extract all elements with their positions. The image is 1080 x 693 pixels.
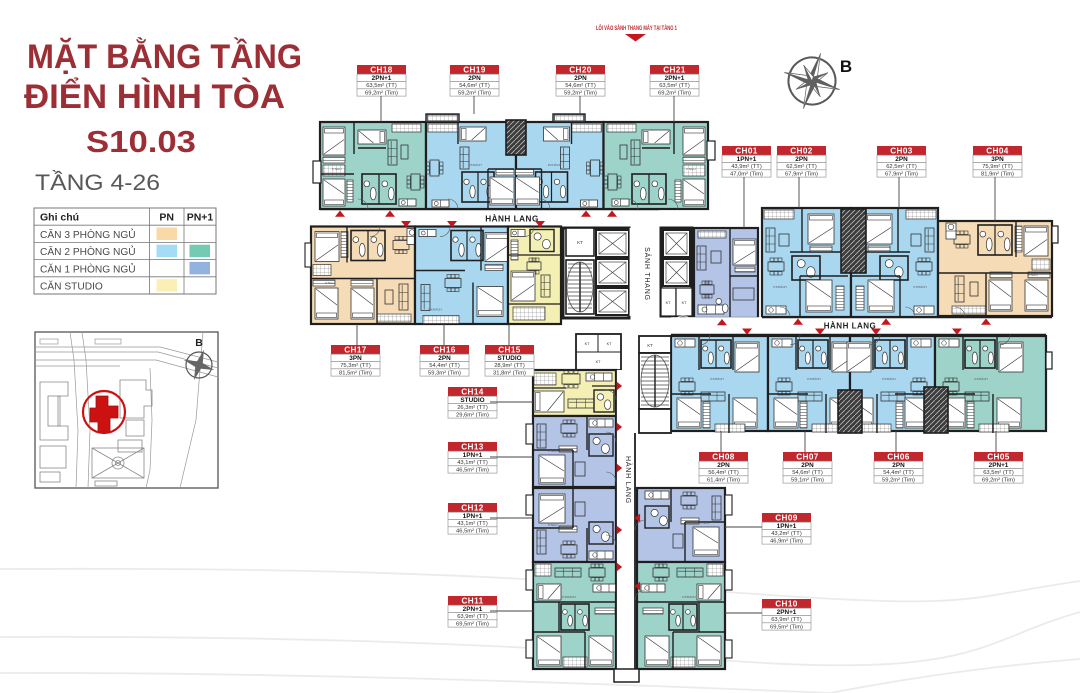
svg-text:54,4m² (TT): 54,4m² (TT) (429, 363, 460, 369)
svg-text:2PN: 2PN (892, 462, 905, 469)
svg-text:2PN+1: 2PN+1 (989, 462, 1009, 469)
svg-text:CĂN 2 PHÒNG NGỦ: CĂN 2 PHÒNG NGỦ (40, 245, 136, 258)
svg-text:PN+1: PN+1 (187, 212, 214, 224)
svg-text:2PN+1: 2PN+1 (777, 609, 797, 616)
svg-text:46,5m² (Tim): 46,5m² (Tim) (456, 467, 489, 473)
svg-text:47,0m² (Tim): 47,0m² (Tim) (730, 171, 763, 177)
svg-text:2PN: 2PN (895, 156, 908, 163)
svg-text:CH15: CH15 (498, 345, 521, 354)
svg-text:26,3m² (TT): 26,3m² (TT) (457, 405, 488, 411)
svg-text:CĂN 3 PHÒNG NGỦ: CĂN 3 PHÒNG NGỦ (40, 228, 136, 241)
svg-text:CH16: CH16 (433, 345, 456, 354)
svg-text:CH09: CH09 (775, 513, 798, 522)
svg-text:KT: KT (682, 301, 688, 305)
svg-text:CH01: CH01 (735, 146, 758, 155)
svg-text:P.KHÁCH: P.KHÁCH (428, 308, 441, 312)
svg-text:SẢNH THANG: SẢNH THANG (643, 247, 652, 301)
svg-text:P.NGỦ: P.NGỦ (548, 448, 557, 453)
svg-text:43,1m² (TT): 43,1m² (TT) (457, 521, 488, 527)
svg-text:69,5m² (Tim): 69,5m² (Tim) (770, 624, 803, 630)
svg-text:62,5m² (TT): 62,5m² (TT) (786, 164, 817, 170)
svg-text:B: B (840, 57, 852, 76)
svg-text:ĐIỂN HÌNH TÒA: ĐIỂN HÌNH TÒA (24, 78, 285, 116)
svg-text:CH08: CH08 (712, 452, 735, 461)
svg-text:63,9m² (TT): 63,9m² (TT) (457, 614, 488, 620)
svg-text:69,2m² (Tim): 69,2m² (Tim) (658, 90, 691, 96)
svg-text:63,5m² (TT): 63,5m² (TT) (366, 83, 397, 89)
svg-text:1PN+1: 1PN+1 (463, 452, 483, 459)
svg-text:P.KHÁCH: P.KHÁCH (974, 377, 987, 381)
svg-text:43,1m² (TT): 43,1m² (TT) (457, 460, 488, 466)
svg-text:HÀNH LANG: HÀNH LANG (824, 322, 877, 331)
svg-text:63,5m² (TT): 63,5m² (TT) (983, 470, 1014, 476)
svg-text:59,2m² (Tim): 59,2m² (Tim) (882, 477, 915, 483)
svg-text:59,1m² (Tim): 59,1m² (Tim) (791, 477, 824, 483)
svg-text:75,3m² (TT): 75,3m² (TT) (340, 363, 371, 369)
svg-text:54,4m² (TT): 54,4m² (TT) (883, 470, 914, 476)
svg-text:CH21: CH21 (663, 65, 686, 74)
svg-text:46,5m² (Tim): 46,5m² (Tim) (456, 528, 489, 534)
svg-text:P.NGỦ: P.NGỦ (332, 166, 341, 171)
svg-text:CH03: CH03 (890, 146, 913, 155)
svg-text:56,4m² (TT): 56,4m² (TT) (708, 470, 739, 476)
svg-text:59,2m² (Tim): 59,2m² (Tim) (458, 90, 491, 96)
svg-text:2PN+1: 2PN+1 (463, 606, 483, 613)
svg-text:CH13: CH13 (461, 442, 484, 451)
svg-text:43,9m² (TT): 43,9m² (TT) (731, 164, 762, 170)
svg-text:KT: KT (607, 342, 613, 346)
svg-text:CĂN STUDIO: CĂN STUDIO (40, 280, 103, 293)
svg-text:2PN: 2PN (801, 462, 814, 469)
svg-text:63,9m² (TT): 63,9m² (TT) (771, 617, 802, 623)
svg-text:1PN+1: 1PN+1 (463, 513, 483, 520)
svg-text:54,6m² (TT): 54,6m² (TT) (565, 83, 596, 89)
svg-text:KT: KT (577, 240, 583, 245)
svg-text:CH05: CH05 (987, 452, 1010, 461)
svg-text:P.NGỦ: P.NGỦ (700, 520, 709, 525)
svg-text:CH11: CH11 (461, 596, 483, 605)
svg-text:P.KHÁCH: P.KHÁCH (882, 377, 895, 381)
svg-text:54,6m² (TT): 54,6m² (TT) (459, 83, 490, 89)
svg-text:KT: KT (585, 342, 591, 346)
svg-text:Ghi chú: Ghi chú (40, 212, 79, 224)
svg-text:P.KHÁCH: P.KHÁCH (913, 285, 926, 289)
svg-text:B: B (195, 337, 203, 349)
svg-text:P.KHÁCH: P.KHÁCH (773, 285, 786, 289)
svg-text:STUDIO: STUDIO (460, 397, 484, 404)
svg-text:2PN+1: 2PN+1 (372, 75, 392, 82)
svg-text:HÀNH LANG: HÀNH LANG (624, 456, 633, 504)
svg-text:29,6m² (Tim): 29,6m² (Tim) (456, 412, 489, 418)
svg-text:31,8m² (Tim): 31,8m² (Tim) (493, 370, 526, 376)
svg-text:P.NGỦ: P.NGỦ (1028, 272, 1037, 277)
svg-text:TẦNG 4-26: TẦNG 4-26 (35, 170, 160, 195)
svg-text:CH07: CH07 (796, 452, 819, 461)
svg-text:PN: PN (159, 212, 174, 224)
svg-text:CH02: CH02 (790, 146, 813, 155)
svg-text:P.NGỦ: P.NGỦ (548, 522, 557, 527)
svg-text:CH17: CH17 (344, 345, 367, 354)
svg-text:1PN+1: 1PN+1 (737, 156, 757, 163)
svg-text:69,2m² (Tim): 69,2m² (Tim) (982, 477, 1015, 483)
svg-text:1PN+1: 1PN+1 (777, 523, 797, 530)
svg-text:CH14: CH14 (461, 387, 484, 396)
svg-text:81,9m² (Tim): 81,9m² (Tim) (981, 171, 1014, 177)
svg-text:59,3m² (Tim): 59,3m² (Tim) (428, 370, 461, 376)
svg-text:CH19: CH19 (463, 65, 486, 74)
svg-text:P.KHÁCH: P.KHÁCH (682, 595, 695, 599)
svg-text:69,5m² (Tim): 69,5m² (Tim) (456, 621, 489, 627)
svg-text:63,5m² (TT): 63,5m² (TT) (659, 83, 690, 89)
svg-text:28,9m² (TT): 28,9m² (TT) (494, 363, 525, 369)
svg-text:HÀNH LANG: HÀNH LANG (485, 214, 539, 224)
svg-text:KT: KT (596, 360, 602, 364)
svg-text:3PN: 3PN (991, 156, 1004, 163)
svg-text:3PN: 3PN (349, 355, 362, 362)
svg-text:2PN: 2PN (717, 462, 730, 469)
svg-text:2PN: 2PN (795, 156, 808, 163)
svg-text:75,9m² (TT): 75,9m² (TT) (982, 164, 1013, 170)
svg-text:61,4m² (Tim): 61,4m² (Tim) (707, 477, 740, 483)
svg-text:P.KHÁCH: P.KHÁCH (562, 595, 575, 599)
svg-text:54,6m² (TT): 54,6m² (TT) (792, 470, 823, 476)
svg-text:43,2m² (TT): 43,2m² (TT) (771, 531, 802, 537)
svg-text:CH18: CH18 (370, 65, 393, 74)
svg-text:CĂN 1 PHÒNG NGỦ: CĂN 1 PHÒNG NGỦ (40, 262, 136, 275)
svg-text:CH12: CH12 (461, 503, 484, 512)
svg-text:MẶT BẰNG TẦNG: MẶT BẰNG TẦNG (27, 38, 302, 76)
svg-text:CH10: CH10 (775, 599, 798, 608)
svg-text:P.NGỦ: P.NGỦ (325, 280, 334, 285)
svg-text:2PN: 2PN (468, 75, 481, 82)
svg-text:81,5m² (Tim): 81,5m² (Tim) (339, 370, 372, 376)
svg-text:P.KHÁCH: P.KHÁCH (548, 163, 561, 167)
svg-text:KT: KT (666, 301, 672, 305)
svg-text:67,9m² (Tim): 67,9m² (Tim) (785, 171, 818, 177)
svg-text:46,9m² (Tim): 46,9m² (Tim) (770, 538, 803, 544)
svg-text:62,5m² (TT): 62,5m² (TT) (886, 164, 917, 170)
svg-text:KT: KT (647, 343, 653, 348)
svg-text:STUDIO: STUDIO (497, 355, 521, 362)
svg-text:2PN: 2PN (574, 75, 587, 82)
svg-text:2PN: 2PN (438, 355, 451, 362)
svg-text:69,2m² (Tim): 69,2m² (Tim) (365, 90, 398, 96)
svg-text:CH20: CH20 (569, 65, 592, 74)
svg-text:P.KHÁCH: P.KHÁCH (710, 377, 723, 381)
svg-text:S10.03: S10.03 (86, 124, 196, 159)
svg-text:67,9m² (Tim): 67,9m² (Tim) (885, 171, 918, 177)
svg-text:P.KHÁCH: P.KHÁCH (468, 163, 481, 167)
svg-text:CH06: CH06 (887, 452, 910, 461)
svg-text:P.KHÁCH: P.KHÁCH (807, 377, 820, 381)
svg-text:59,2m² (Tim): 59,2m² (Tim) (564, 90, 597, 96)
svg-text:CH04: CH04 (986, 146, 1009, 155)
svg-text:2PN+1: 2PN+1 (665, 75, 685, 82)
svg-text:P.NGỦ: P.NGỦ (686, 166, 695, 171)
